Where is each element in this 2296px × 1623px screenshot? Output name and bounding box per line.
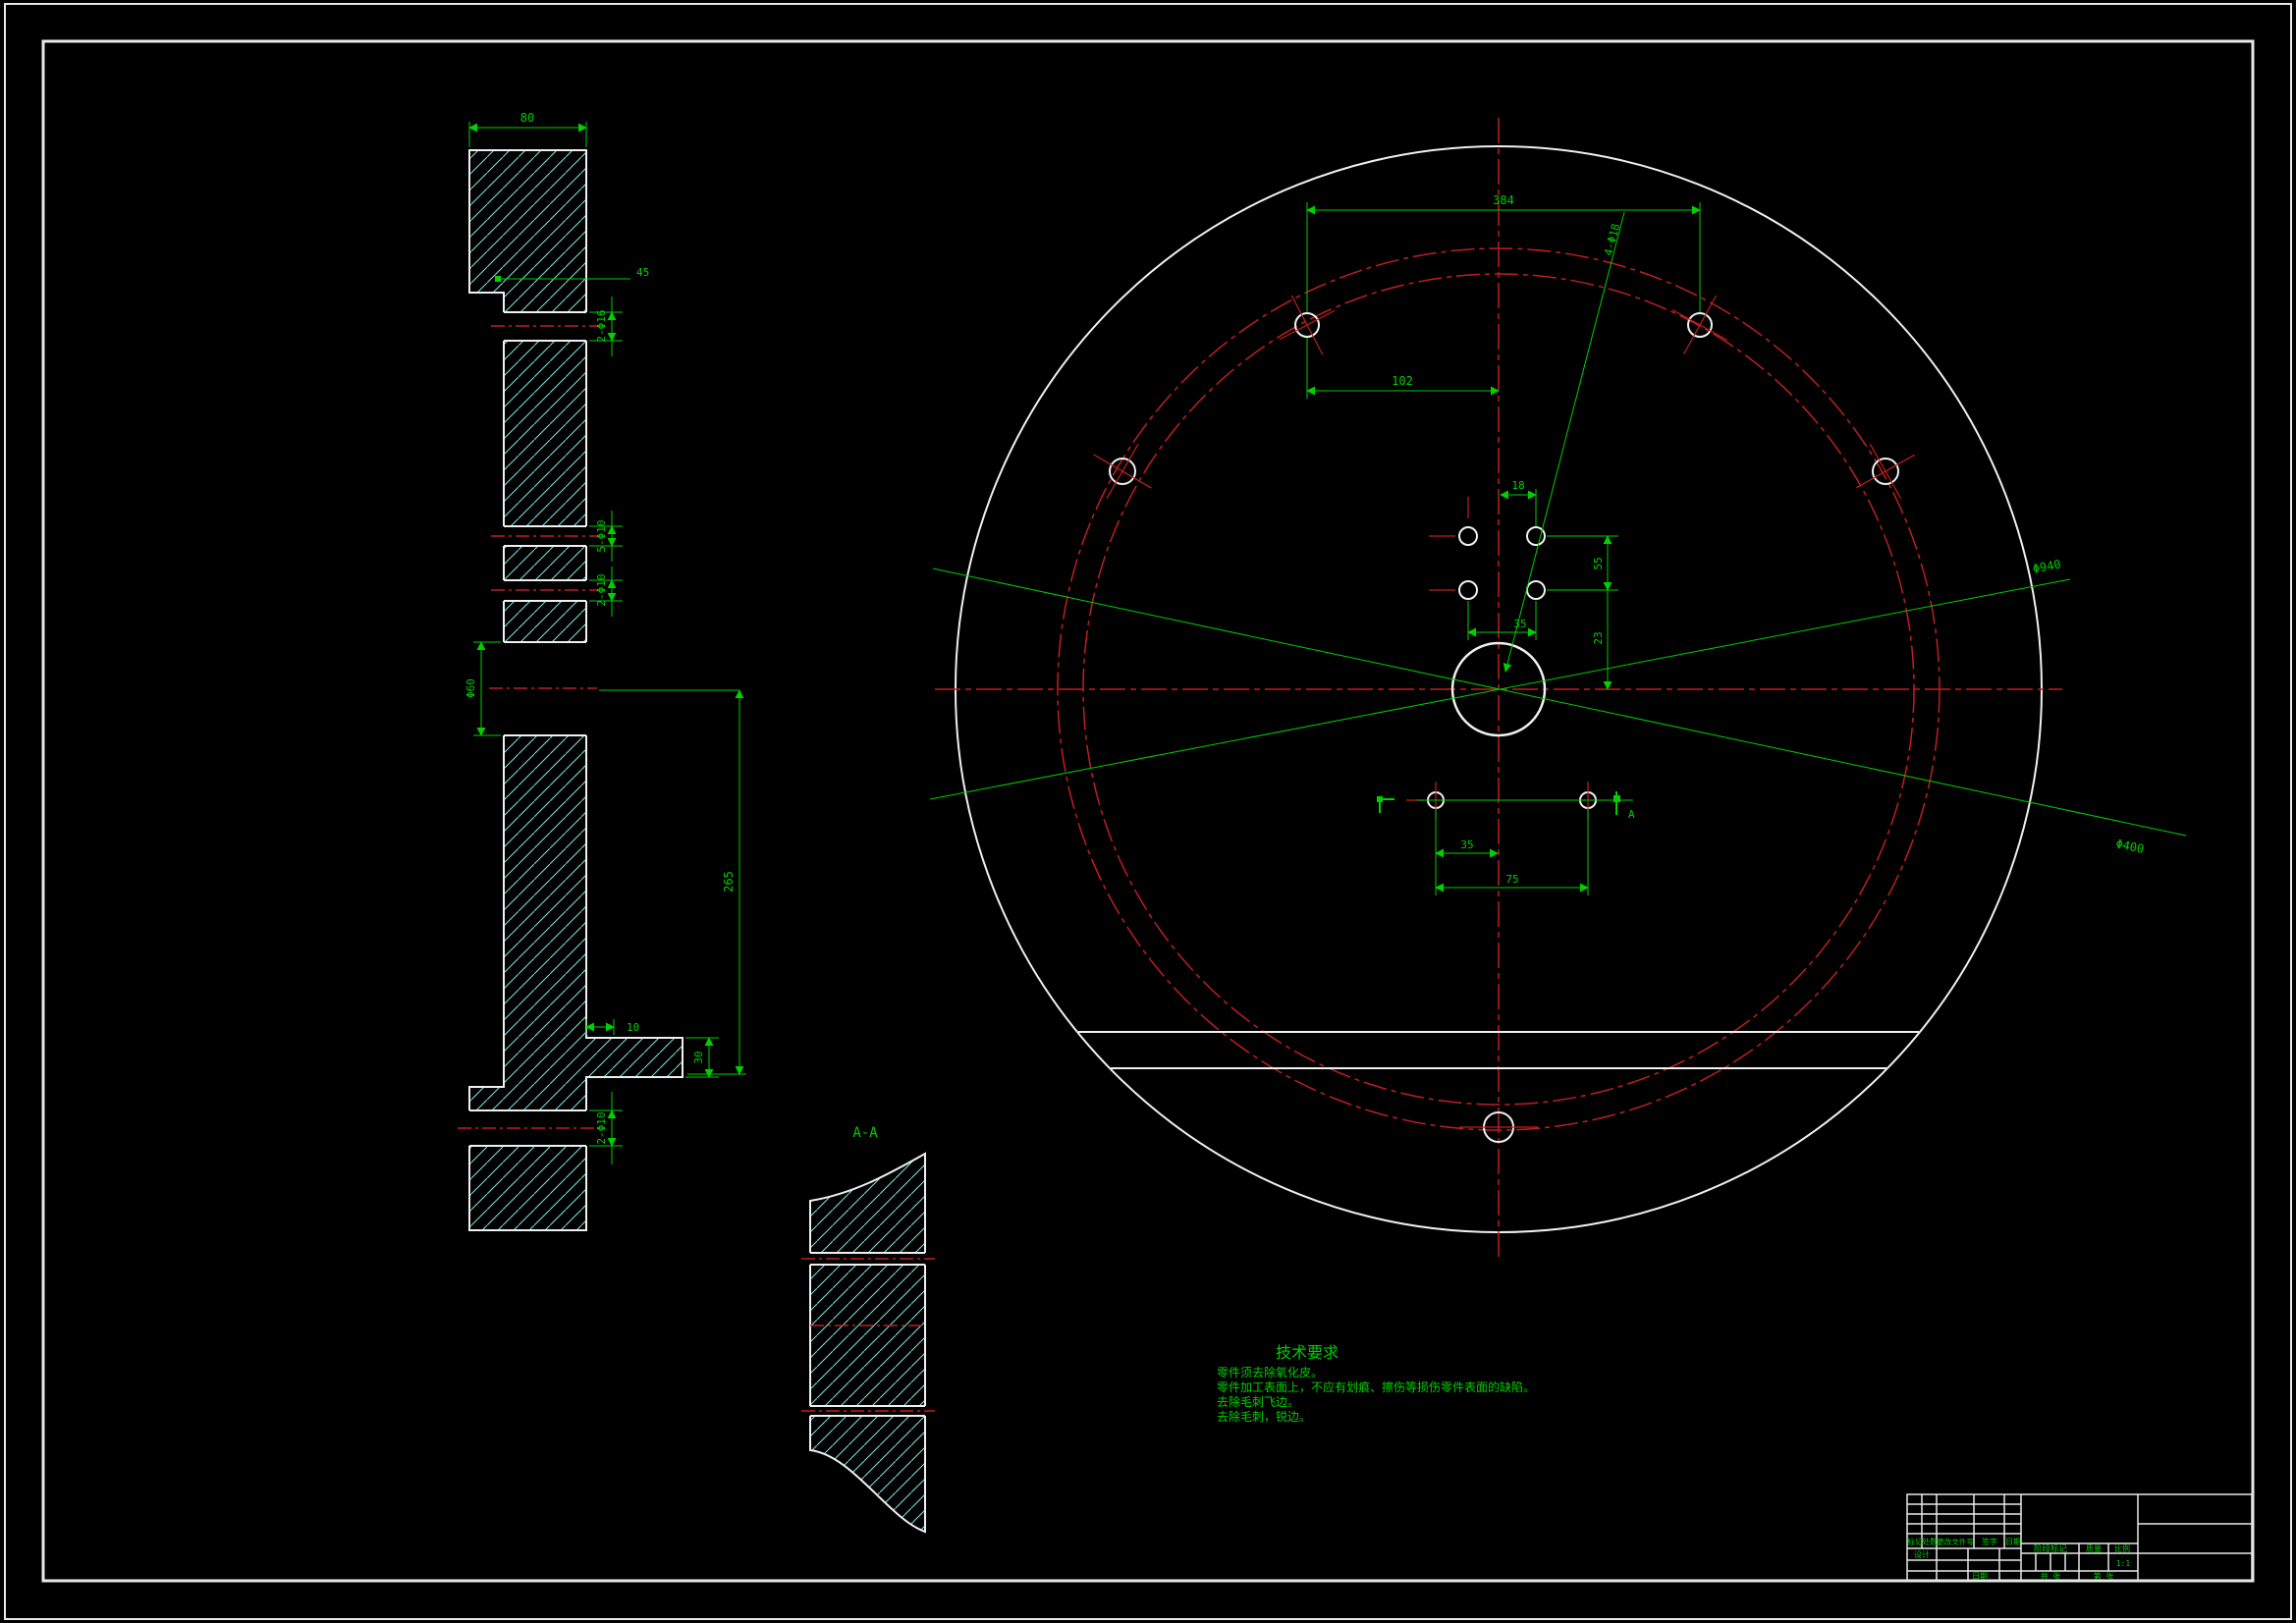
tb-scale-label: 比例 — [2114, 1543, 2130, 1553]
tb-label-change-file: 更改文件号 — [1937, 1537, 1974, 1546]
dim-lower-span: 75 — [1505, 873, 1518, 886]
tb-sheet-total: 共 张 — [2041, 1572, 2061, 1581]
dim-top-offset: 102 — [1392, 374, 1413, 388]
dim-bore: Φ60 — [465, 678, 477, 698]
dim-hole-low: 2-Φ10 — [595, 573, 608, 606]
tb-scale-value: 1:1 — [2116, 1559, 2131, 1568]
section-mark-a: A — [1628, 808, 1635, 821]
dim-hole-top: 2-Φ16 — [595, 309, 608, 342]
tb-date-label: 日期 — [1972, 1572, 1988, 1581]
tb-sheet-no: 第 张 — [2094, 1571, 2114, 1581]
dim-top-span: 384 — [1493, 193, 1514, 207]
tb-stage-label: 阶段标记 — [2034, 1543, 2068, 1554]
cad-drawing-canvas: 80 45 2-Φ16 5-Φ10 2-Φ10 Φ60 265 10 30 2-… — [0, 0, 2296, 1623]
dim-offset-y: 23 — [1592, 631, 1605, 644]
dim-step: 45 — [636, 266, 649, 279]
tb-label-count: 处数 — [1922, 1537, 1938, 1546]
tech-req-line-2: 零件加工表面上，不应有划痕、擦伤等损伤零件表面的缺陷。 — [1217, 1380, 1535, 1394]
tb-mass-label: 质量 — [2086, 1543, 2102, 1553]
tech-req-line-3: 去除毛刺飞边。 — [1217, 1394, 1299, 1409]
dim-top-width: 80 — [520, 111, 534, 125]
tb-label-signature: 签字 — [1982, 1537, 1997, 1546]
tech-req-line-4: 去除毛刺，锐边。 — [1217, 1409, 1311, 1424]
dim-pitch-x: 18 — [1511, 479, 1524, 492]
dim-lower-offset: 35 — [1460, 839, 1473, 851]
tb-designer-label: 设计 — [1914, 1549, 1930, 1559]
dim-tab-height: 30 — [692, 1051, 705, 1063]
drawing-background — [0, 0, 2296, 1623]
dim-span-x: 35 — [1513, 618, 1526, 630]
dim-hole-bottom: 2-Φ10 — [595, 1111, 608, 1144]
tb-label-date: 日期 — [2005, 1538, 2021, 1546]
tb-label-mark: 标记 — [1907, 1537, 1923, 1546]
tech-requirements-title: 技术要求 — [1276, 1343, 1339, 1362]
tech-req-line-1: 零件须去除氧化皮。 — [1217, 1365, 1323, 1380]
dim-tab-width: 10 — [627, 1021, 639, 1034]
dim-span: 265 — [722, 871, 736, 893]
dim-span-y: 55 — [1592, 557, 1605, 569]
section-aa-label: A-A — [852, 1125, 878, 1141]
dim-hole-mid: 5-Φ10 — [595, 519, 608, 552]
